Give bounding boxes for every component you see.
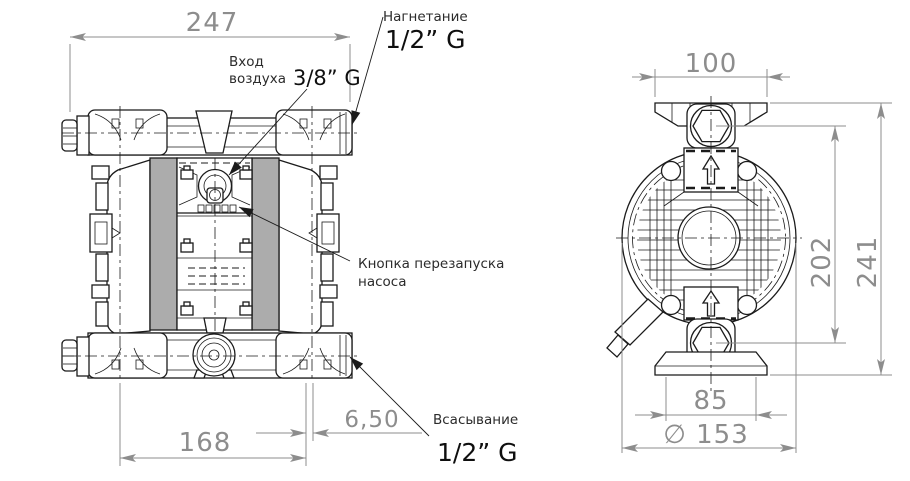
front-center-section xyxy=(177,158,252,333)
dim-85-text: 85 xyxy=(693,386,728,416)
bottom-center-port xyxy=(193,334,235,376)
bottom-left-clamp xyxy=(88,333,167,378)
side-exhaust-spout xyxy=(607,299,663,357)
drawing-page: 247 168 6,50 xyxy=(0,0,910,481)
bottom-right-clamp xyxy=(276,333,352,378)
top-manifold xyxy=(62,110,352,155)
side-bolt-top-right xyxy=(738,162,757,181)
dim-offset: 6,50 xyxy=(256,383,422,441)
dim-flange-width: 100 xyxy=(632,49,790,97)
dim-100-text: 100 xyxy=(685,49,738,79)
dim-168-text: 168 xyxy=(179,428,232,458)
dim-153-text: ∅ 153 xyxy=(663,420,749,450)
discharge-size-label: 1/2” G xyxy=(385,25,466,54)
air-inlet-size-label: 3/8” G xyxy=(293,66,361,90)
air-inlet-label-1: Вход xyxy=(229,54,264,70)
dim-247-text: 247 xyxy=(186,8,239,38)
top-left-clamp xyxy=(88,110,167,155)
top-left-port-neck xyxy=(77,116,89,155)
dim-ports-distance: 168 xyxy=(120,383,306,466)
top-right-clamp xyxy=(276,110,352,155)
restart-label-2: насоса xyxy=(358,274,406,290)
dim-650-text: 6,50 xyxy=(344,407,399,433)
side-bolt-bottom-left xyxy=(662,296,681,315)
bottom-left-port-cap xyxy=(62,340,77,371)
restart-label-1: Кнопка перезапуска xyxy=(358,256,504,272)
pump-technical-drawing: 247 168 6,50 xyxy=(0,0,910,481)
discharge-label: Нагнетание xyxy=(383,9,468,25)
bottom-left-port-neck xyxy=(77,337,89,376)
suction-size-label: 1/2” G xyxy=(437,438,518,467)
side-view: 100 202 241 85 xyxy=(607,49,892,453)
side-bolt-top-left xyxy=(662,162,681,181)
top-left-port-cap xyxy=(62,120,77,151)
front-view: 247 168 6,50 xyxy=(62,8,518,467)
air-inlet-label-2: воздуха xyxy=(229,71,286,87)
dim-overall-width: 247 xyxy=(70,8,350,112)
dim-241-text: 241 xyxy=(853,236,883,289)
dim-202-text: 202 xyxy=(807,236,837,289)
bottom-manifold xyxy=(62,333,352,378)
suction-label: Всасывание xyxy=(433,412,518,428)
left-gray-panel xyxy=(150,158,177,330)
side-bolt-bottom-right xyxy=(738,296,757,315)
right-gray-panel xyxy=(252,158,279,330)
front-right-chamber xyxy=(279,160,339,334)
